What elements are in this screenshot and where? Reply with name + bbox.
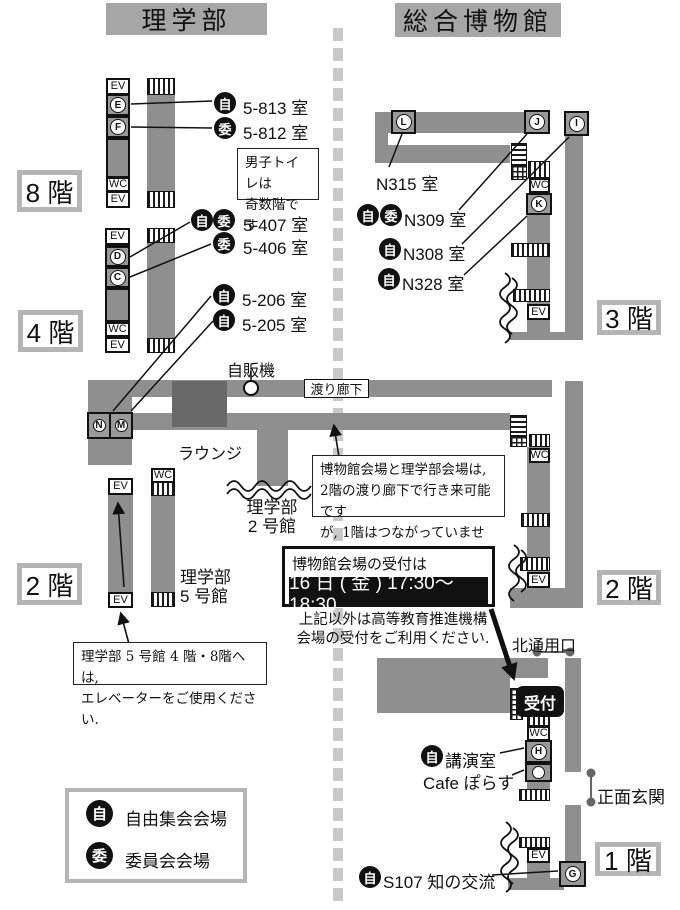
letter-E-icon: E — [110, 97, 126, 113]
wc-label: WC — [108, 324, 126, 335]
elevator-point-I: I — [564, 111, 589, 136]
legend-free-label: 自由集会会場 — [125, 805, 227, 830]
floor4-stairs-bottom — [147, 338, 175, 353]
floor4-wc: WC — [105, 322, 130, 337]
museum2f-stairs-c — [529, 434, 550, 447]
room-5-205: 5-205 室 — [242, 311, 307, 336]
museum2f-ev: EV — [527, 572, 550, 588]
room-N315: N315 室 — [376, 170, 438, 195]
elevator-point-E: E — [106, 94, 130, 116]
legend-committee-badge: 委 — [86, 842, 113, 869]
floor2-right-tag: 2 階 — [597, 570, 661, 605]
free-badge-label: 自 — [383, 240, 396, 259]
building5-label: 理学部 5 号館 — [180, 569, 244, 606]
free-badge: 自 — [378, 268, 400, 290]
museum2f-wc: WC — [529, 448, 550, 463]
letter-H-icon: H — [531, 744, 547, 760]
wc-label: WC — [530, 180, 548, 191]
floor4-room-strip — [147, 228, 175, 353]
reception-tag: 受付 — [516, 686, 564, 717]
wc-label: WC — [529, 728, 547, 739]
corridor-note-line2: 2階の渡り廊下で行き来可能です — [320, 481, 497, 523]
other-reception-line1: 上記以外は高等教育推進機構 — [288, 611, 498, 630]
free-badge-label: 自 — [195, 211, 208, 230]
floor2-right-tag-label: 2 階 — [605, 569, 653, 606]
mens-toilet-note-line1: 男子トイレは — [245, 153, 311, 195]
floor2-ev-top: EV — [108, 478, 133, 495]
floor4-corridor-seg2 — [105, 288, 130, 322]
room-S107: S107 知の交流 — [383, 868, 495, 893]
letter-L-icon: L — [396, 114, 412, 130]
floor2-left-tag-label: 2 階 — [26, 566, 74, 603]
free-badge-label: 自 — [361, 206, 374, 225]
other-reception-line2: 会場の受付をご利用ください. — [288, 630, 498, 649]
crossing-corridor-box: 渡り廊下 — [304, 379, 369, 398]
left-building-title: 理学部 — [141, 1, 231, 37]
elevator-note-line1: 理学部 5 号館 4 階・8階へは, — [81, 647, 259, 689]
letter-M-icon: M — [115, 419, 128, 432]
letter-K-icon: K — [531, 196, 547, 212]
museum1f-east-strip-lower — [565, 805, 581, 863]
building2-stub — [257, 430, 288, 486]
elevator-point-L: L — [391, 110, 416, 134]
museum1f-stairs-c — [519, 837, 550, 848]
committee-badge: 委 — [380, 204, 402, 226]
elevator-point-J: J — [524, 110, 550, 134]
building5-label-line1: 理学部 — [180, 569, 244, 588]
letter-F-icon: F — [110, 119, 126, 135]
ev-label: EV — [531, 575, 546, 586]
floor8-ev-bottom: EV — [106, 191, 130, 208]
reception-hours-time: 16 日 ( 金 ) 17:30〜18:30 — [289, 568, 488, 617]
letter-J-icon: J — [529, 114, 545, 130]
elevator-points-NM: N M — [87, 412, 133, 439]
floor3-tag-label: 3 階 — [605, 299, 653, 336]
free-badge: 自 — [191, 209, 213, 231]
floor2-left-tag: 2 階 — [17, 563, 82, 605]
floor4-ev-bottom: EV — [105, 337, 130, 353]
letter-I-icon: I — [569, 116, 585, 132]
free-badge-label: 自 — [382, 270, 395, 289]
vending-machine-label: 自販機 — [227, 357, 275, 381]
floor2-ev-bottom: EV — [108, 592, 133, 608]
room-N308: N308 室 — [403, 240, 465, 265]
museum1f-east-strip-upper — [565, 658, 581, 772]
ev-label: EV — [111, 81, 126, 92]
wc-label: WC — [154, 470, 172, 481]
museum2f-stairs-mid — [521, 513, 550, 527]
museum1f-step-block — [510, 658, 548, 678]
corridor-note-line1: 博物館会場と理学部会場は, — [320, 460, 497, 481]
museum2f-bottom-bar — [510, 588, 583, 608]
room-N328: N328 室 — [402, 270, 464, 295]
committee-badge: 委 — [213, 232, 235, 254]
museum1f-corridor-seg2 — [527, 863, 550, 879]
committee-badge-label: 委 — [384, 206, 397, 225]
elevator-point-F: F — [106, 116, 130, 138]
lounge-block — [172, 381, 227, 427]
floor2-wc: WC — [151, 468, 175, 483]
museum3f-stairs-mid — [511, 243, 550, 257]
committee-badge: 委 — [213, 209, 235, 231]
building2-label: 理学部 2 号館 — [238, 499, 306, 536]
free-badge: 自 — [213, 284, 235, 306]
elevator-point-N: N — [89, 414, 109, 437]
room-N309: N309 室 — [404, 206, 466, 231]
letter-D-icon: D — [110, 249, 126, 265]
elevator-point-C: C — [105, 267, 130, 288]
room-5-812: 5-812 室 — [243, 119, 308, 144]
committee-badge-label: 委 — [92, 845, 107, 866]
legend-free-badge: 自 — [86, 800, 113, 827]
ev-label: EV — [531, 850, 546, 861]
floor1-tag-label: 1 階 — [604, 841, 652, 878]
museum2f-east-strip — [565, 381, 583, 608]
other-reception-note: 上記以外は高等教育推進機構 会場の受付をご利用ください. — [288, 611, 498, 649]
floor8-tag-label: 8 階 — [26, 173, 74, 210]
elevator-note: 理学部 5 号館 4 階・8階へは, エレベーターをご使用ください. — [73, 642, 267, 685]
main-entrance-label: 正面玄関 — [597, 783, 665, 808]
letter-N-icon: N — [93, 419, 106, 432]
letter-G-icon: G — [565, 866, 581, 882]
museum2f-stairs-low — [520, 557, 550, 571]
ev-label: EV — [110, 231, 125, 242]
lounge-label: ラウンジ — [178, 440, 242, 464]
elevator-point-G: G — [559, 861, 586, 887]
elevator-point-K: K — [526, 193, 552, 215]
free-badge: 自 — [357, 204, 379, 226]
cafe-circle-icon — [532, 766, 545, 779]
floor4-stairs-top — [147, 228, 175, 243]
legend-committee-label: 委員会会場 — [125, 847, 210, 872]
floor8-ev-top: EV — [106, 78, 130, 95]
free-badge-label: 自 — [217, 286, 230, 305]
ev-label: EV — [113, 481, 128, 492]
committee-badge-label: 委 — [217, 234, 230, 253]
wc-label: WC — [109, 179, 127, 190]
elevator-point-M: M — [111, 414, 131, 437]
museum3f-wc: WC — [529, 178, 550, 193]
left-building-header: 理学部 — [106, 3, 267, 35]
room-5-206: 5-206 室 — [242, 286, 307, 311]
floor4-ev-top: EV — [105, 228, 130, 245]
ev-label: EV — [110, 340, 125, 351]
free-badge-label: 自 — [425, 747, 438, 766]
cafe-point — [525, 763, 552, 782]
ev-label: EV — [111, 194, 126, 205]
free-badge: 自 — [379, 238, 401, 260]
free-badge: 自 — [213, 309, 235, 331]
elevator-point-D: D — [105, 246, 130, 267]
museum3f-north-bar2 — [375, 145, 510, 163]
mens-toilet-note: 男子トイレは 奇数階です — [237, 148, 319, 200]
museum1f-main-block — [377, 658, 510, 713]
wc-label: WC — [530, 450, 548, 461]
building2-label-line1: 理学部 — [238, 499, 306, 518]
crossing-corridor-label: 渡り廊下 — [310, 379, 362, 398]
museum1f-wc: WC — [527, 726, 550, 741]
museum2f-stairs-b — [510, 436, 527, 447]
building5-label-line2: 5 号館 — [180, 588, 244, 607]
committee-badge-label: 委 — [217, 211, 230, 230]
north-gate-label: 北通用口 — [512, 632, 576, 656]
museum3f-stairs-a — [511, 143, 527, 165]
free-badge-label: 自 — [217, 311, 230, 330]
floor-map-canvas: 理学部 総合博物館 EV E F WC EV 自 5-813 室 委 5-812… — [0, 0, 680, 910]
building2-label-line2: 2 号館 — [238, 518, 306, 537]
room-5-813: 5-813 室 — [243, 94, 308, 119]
elevator-point-H: H — [525, 740, 552, 763]
museum1f-stairs-b — [519, 789, 550, 801]
elevator-note-line2: エレベーターをご使用ください. — [81, 689, 259, 731]
museum1f-bottom-bar — [508, 878, 564, 890]
museum3f-stairs-low — [513, 289, 550, 302]
floor8-room-strip — [147, 78, 175, 208]
free-badge: 自 — [421, 745, 443, 767]
reception-hours-bar: 16 日 ( 金 ) 17:30〜18:30 — [289, 577, 488, 607]
museum3f-east-strip — [565, 112, 583, 340]
right-building-title: 総合博物館 — [403, 2, 553, 38]
ev-label: EV — [531, 307, 546, 318]
free-badge: 自 — [214, 92, 236, 114]
reception-tag-label: 受付 — [524, 690, 556, 714]
floor2-stairs-upper — [151, 482, 175, 496]
free-badge: 自 — [359, 866, 381, 888]
museum2f-stairs-a — [510, 415, 527, 436]
floor8-wc: WC — [106, 177, 130, 192]
free-badge-label: 自 — [92, 803, 107, 824]
free-badge-label: 自 — [218, 94, 231, 113]
room-cafe: Cafe ぽらす — [423, 769, 514, 794]
free-badge-label: 自 — [363, 868, 376, 887]
letter-C-icon: C — [110, 270, 126, 286]
museum1f-ev: EV — [527, 848, 550, 863]
building5-left-corridor — [108, 495, 133, 592]
museum3f-bottom-bar — [510, 332, 583, 340]
reception-hours-box: 博物館会場の受付は 16 日 ( 金 ) 17:30〜18:30 — [282, 546, 495, 607]
building5-right-strip — [151, 496, 175, 592]
right-building-header: 総合博物館 — [395, 3, 561, 37]
floor3-tag: 3 階 — [597, 300, 661, 335]
room-5-407: 5-407 室 — [243, 211, 308, 236]
floor4-tag-label: 4 階 — [27, 313, 75, 350]
committee-badge-label: 委 — [218, 119, 231, 138]
room-5-406: 5-406 室 — [243, 234, 308, 259]
ev-label: EV — [113, 595, 128, 606]
floor1-tag: 1 階 — [595, 842, 661, 876]
corridor-note: 博物館会場と理学部会場は, 2階の渡り廊下で行き来可能です が, 1階はつながっ… — [312, 455, 505, 517]
floor4-tag: 4 階 — [18, 310, 83, 352]
floor8-corridor-seg — [106, 138, 130, 178]
museum3f-stairs-b — [511, 165, 527, 180]
floor8-stairs-bottom — [147, 191, 175, 208]
museum3f-stairs-c — [528, 161, 550, 178]
museum3f-ev: EV — [527, 304, 550, 320]
floor8-tag: 8 階 — [17, 170, 82, 212]
floor2-stairs-lower — [151, 592, 175, 607]
floor8-stairs-top — [147, 78, 175, 95]
committee-badge: 委 — [214, 117, 236, 139]
